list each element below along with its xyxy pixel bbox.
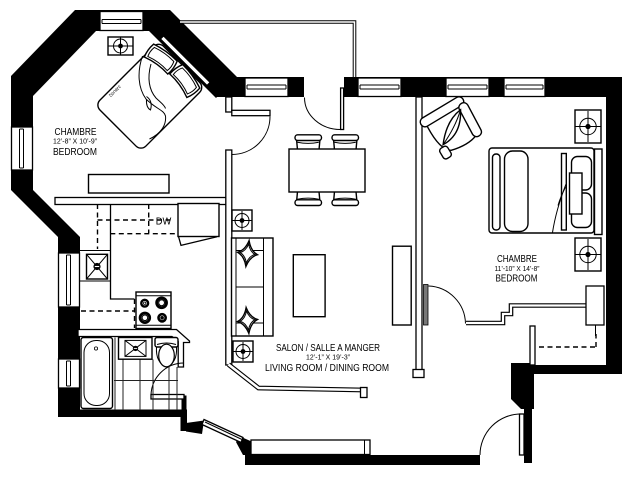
- svg-text:12’-8” X 10’-9”: 12’-8” X 10’-9”: [53, 137, 97, 146]
- svg-text:DW: DW: [156, 216, 172, 228]
- svg-text:LIVING ROOM / DINING ROOM: LIVING ROOM / DINING ROOM: [265, 362, 389, 374]
- svg-text:BEDROOM: BEDROOM: [496, 273, 538, 285]
- svg-text:12’-1” X 19’-3”: 12’-1” X 19’-3”: [306, 353, 350, 362]
- svg-text:BEDROOM: BEDROOM: [53, 146, 97, 158]
